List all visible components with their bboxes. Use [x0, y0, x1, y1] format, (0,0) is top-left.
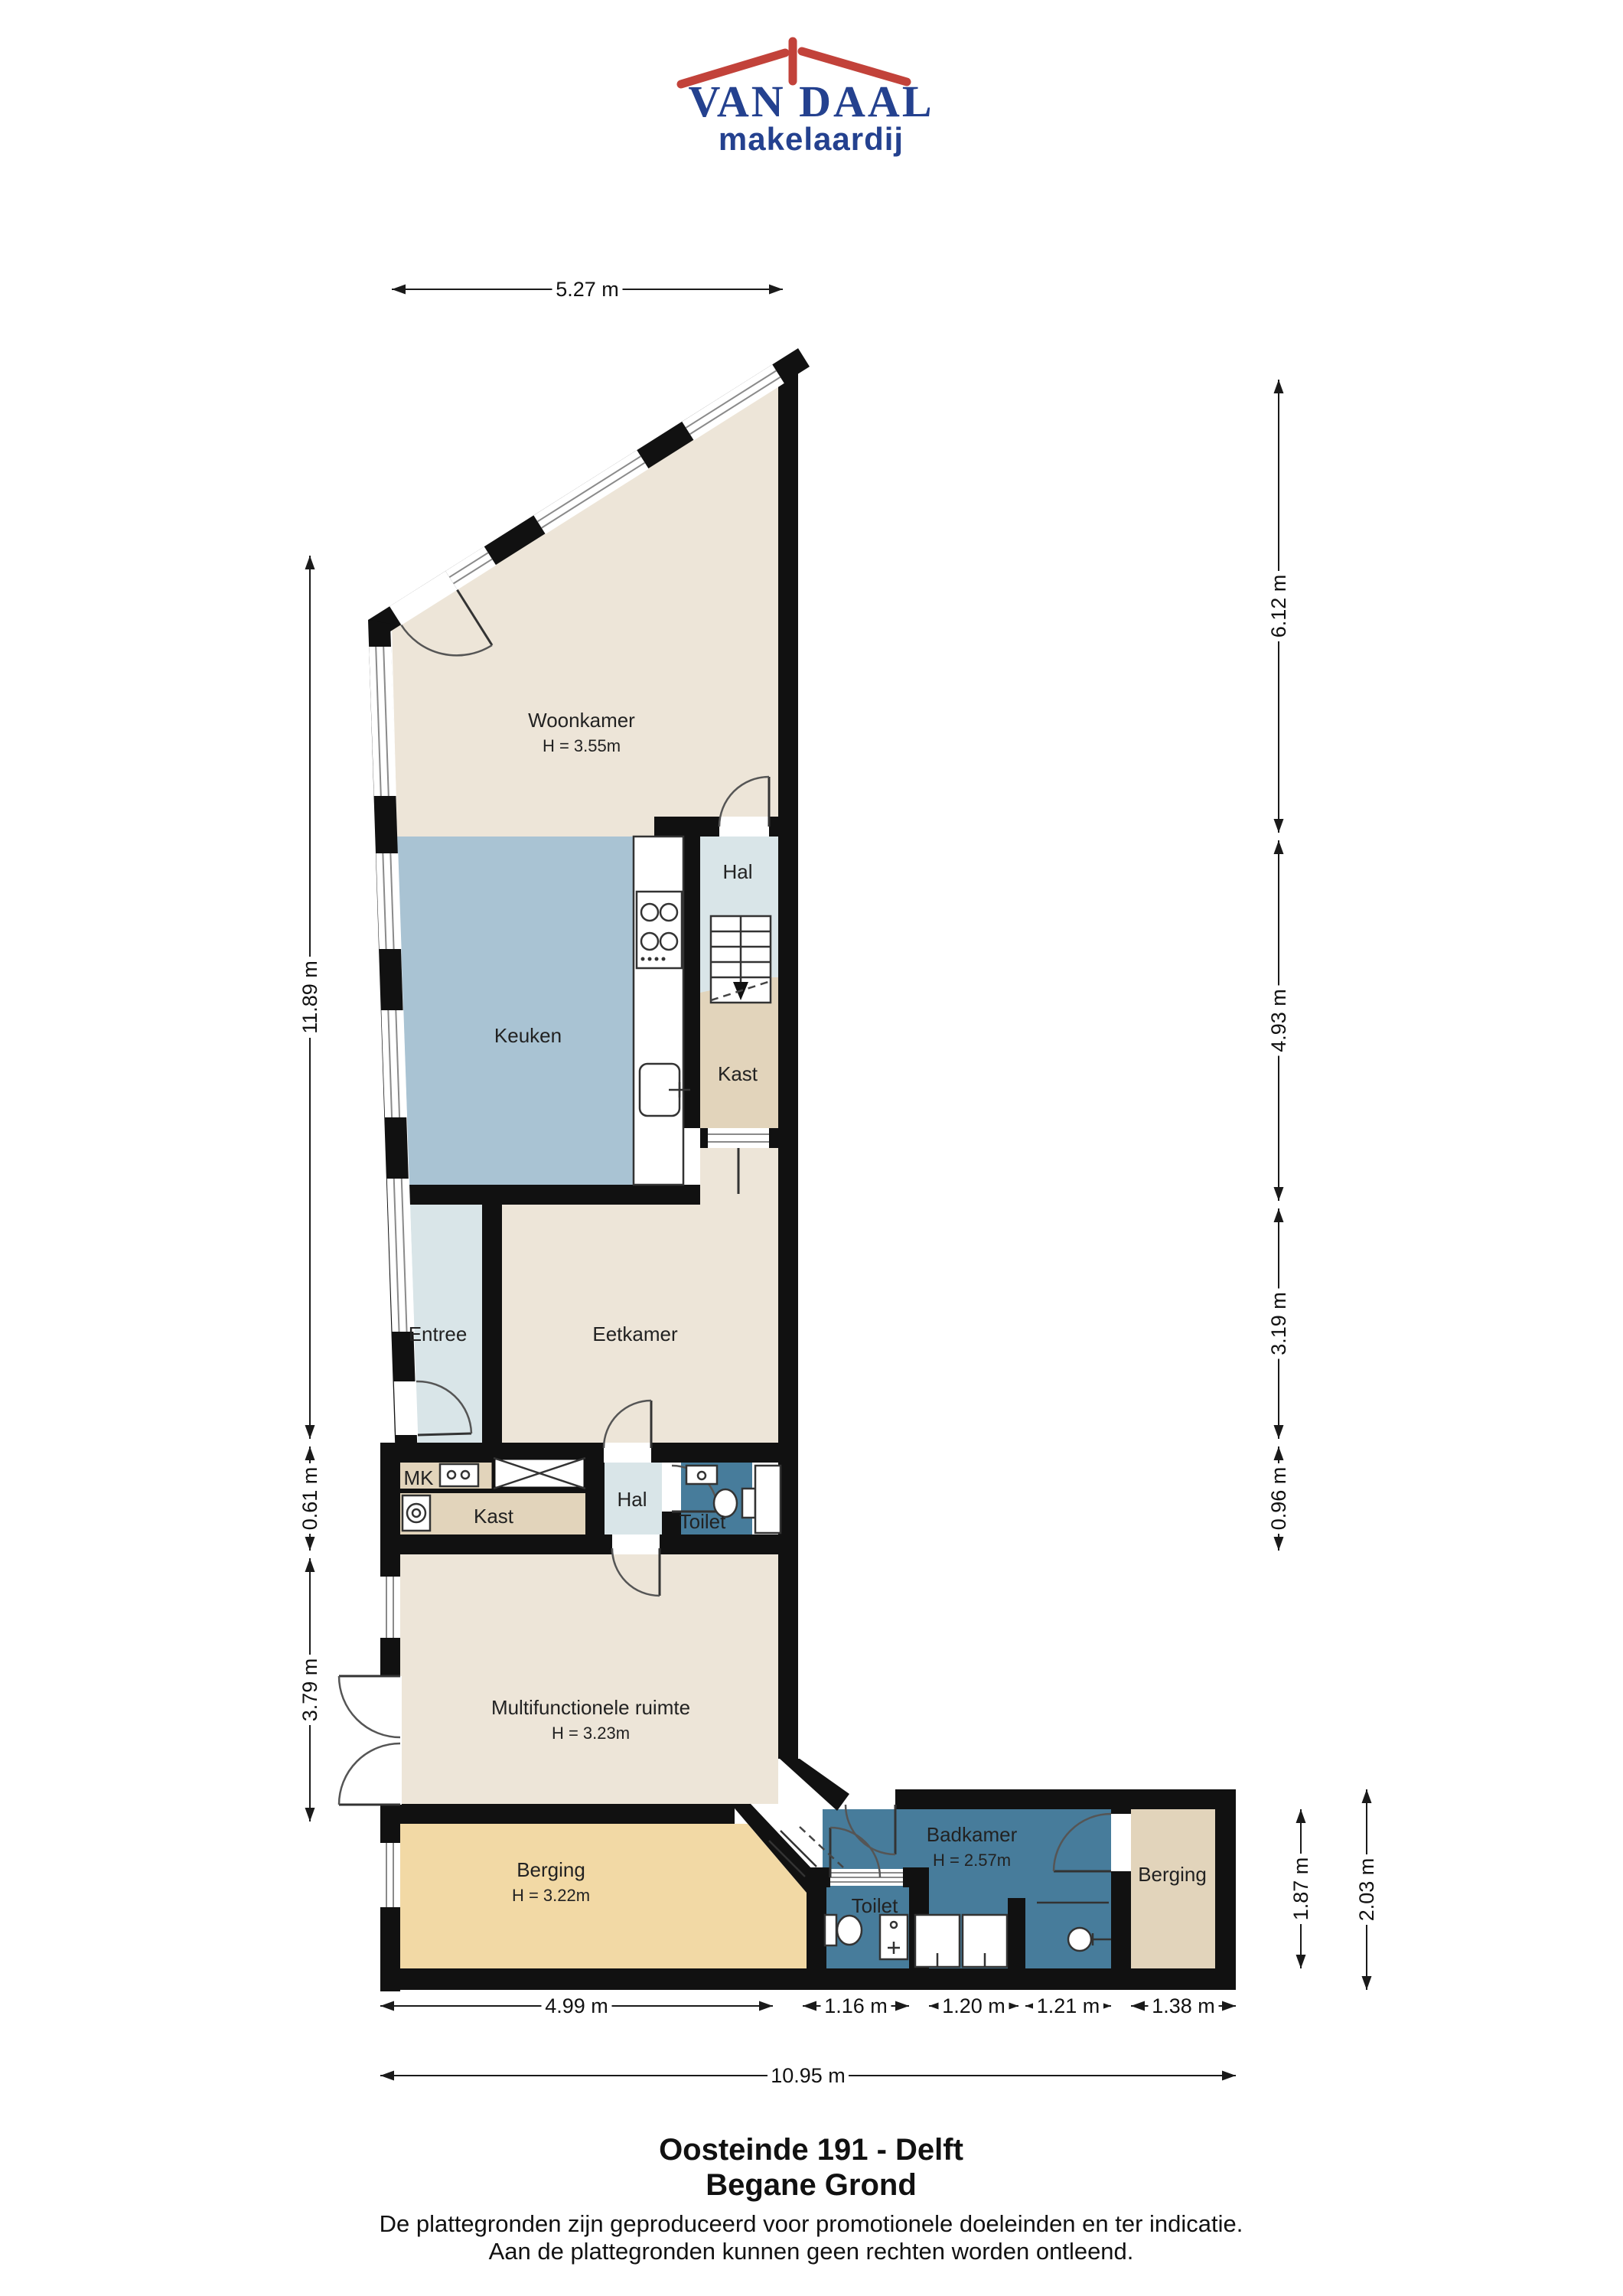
room-label-woonkamer: Woonkamer	[528, 709, 635, 732]
room-sublabel-multifunctionele-ruimte: H = 3.23m	[552, 1724, 630, 1743]
dimension-1.87m-v-part: 1.87 m	[1289, 1854, 1313, 1924]
room-label-berging-links: Berging	[517, 1858, 585, 1881]
floorplan-canvas: VAN DAAL makelaardij	[0, 0, 1623, 2296]
dimension-3.79m-v: 3.79 m	[298, 1558, 322, 1821]
dimension-1.38m-h-part	[1131, 2001, 1145, 2011]
footer-disclaimer-1: De plattegronden zijn geproduceerd voor …	[380, 2210, 1243, 2237]
dimension-6.12m-v: 6.12 m	[1266, 380, 1291, 833]
room-label-toilet-achter: Toilet	[852, 1894, 898, 1917]
dimension-6.12m-v-part: 6.12 m	[1266, 571, 1291, 641]
toilet-icon-part	[837, 1916, 862, 1945]
walls-layer-part	[769, 817, 778, 837]
dimension-0.96m-v-part: 0.96 m	[1266, 1463, 1291, 1534]
room-sublabel-badkamer: H = 2.57m	[933, 1851, 1011, 1870]
rooms-layer	[392, 372, 1215, 1968]
dimension-1.87m-v: 1.87 m	[1289, 1809, 1313, 1968]
walls-layer-part	[1215, 1789, 1236, 1990]
room-berging-rechts	[1131, 1809, 1215, 1968]
shaft-cross-icon	[494, 1458, 585, 1489]
room-label-entree: Entree	[409, 1322, 468, 1345]
walls-layer-part	[394, 1185, 700, 1205]
room-label-hal-boven: Hal	[722, 860, 752, 883]
dimension-0.61m-v-part: 0.61 m	[298, 1463, 322, 1534]
dimension-10.95m-h: 10.95 m	[380, 2063, 1236, 2088]
dimension-0.61m-v: 0.61 m	[298, 1446, 322, 1551]
dimension-label: 3.19 m	[1267, 1292, 1290, 1355]
dimension-3.19m-v-part	[1274, 1425, 1284, 1439]
logo-brand: VAN DAAL	[688, 77, 934, 126]
dimension-label: 3.79 m	[298, 1658, 321, 1722]
dimension-1.16m-h-part	[895, 2001, 909, 2011]
dimension-2.03m-v-part	[1362, 1789, 1372, 1803]
front-door-opening	[394, 1381, 418, 1435]
toilet-icon-part	[825, 1915, 836, 1945]
toilet-icon	[825, 1915, 862, 1945]
room-label-berging-rechts: Berging	[1138, 1863, 1207, 1886]
walls-layer-part	[651, 1443, 798, 1463]
dimension-4.93m-v-part	[1274, 1187, 1284, 1201]
walls-layer-part	[1111, 1871, 1131, 1968]
dimension-2.03m-v-part	[1362, 1976, 1372, 1990]
stove-icon-part	[637, 892, 682, 968]
dimension-1.16m-h-part	[803, 2001, 816, 2011]
dimension-11.89m-v: 11.89 m	[298, 556, 322, 1439]
walls-layer-part	[769, 1128, 778, 1148]
room-label-keuken: Keuken	[494, 1024, 562, 1047]
walls-layer-part	[654, 817, 719, 837]
window	[708, 1128, 769, 1148]
walls-layer-part	[660, 1534, 798, 1554]
room-sublabel-woonkamer: H = 3.55m	[543, 736, 621, 755]
dimension-4.93m-v: 4.93 m	[1266, 840, 1291, 1201]
dimension-0.61m-v-part	[305, 1446, 315, 1460]
walls-layer-part	[683, 817, 700, 1128]
double-door-opening	[379, 1676, 402, 1805]
dimension-11.89m-v-part	[305, 556, 315, 569]
dimension-1.21m-h: 1.21 m	[1025, 1994, 1111, 2018]
dimension-11.89m-v-part	[305, 1425, 315, 1439]
dimension-0.61m-v-part	[305, 1537, 315, 1551]
dimension-3.79m-v-part	[305, 1808, 315, 1821]
walls-layer-part	[780, 1759, 849, 1811]
walls-layer-part	[380, 1804, 735, 1824]
dimension-1.20m-h: 1.20 m	[929, 1994, 1018, 2018]
dimension-3.79m-v-part: 3.79 m	[298, 1655, 322, 1725]
walls-layer-part	[380, 1534, 612, 1554]
room-label-kast-strip: Kast	[474, 1505, 514, 1528]
walls-layer-part	[1111, 1809, 1131, 1814]
walls-layer-part	[1008, 1898, 1025, 1968]
dimension-0.96m-v-part	[1274, 1446, 1284, 1460]
walls-layer-part	[585, 1463, 605, 1534]
dimension-4.93m-v-part: 4.93 m	[1266, 986, 1291, 1056]
dimension-3.19m-v-part	[1274, 1208, 1284, 1222]
room-sublabel-berging-links: H = 3.22m	[512, 1886, 590, 1905]
dimension-1.16m-h: 1.16 m	[803, 1994, 909, 2018]
washer-icon	[402, 1495, 430, 1531]
dimension-label: 6.12 m	[1267, 575, 1290, 638]
window	[381, 1010, 407, 1117]
dimension-1.87m-v-part	[1296, 1955, 1306, 1968]
room-label-multifunctionele-ruimte: Multifunctionele ruimte	[491, 1696, 690, 1719]
stove-icon-part	[662, 957, 666, 961]
boiler-icon	[440, 1464, 478, 1486]
dimension-4.99m-h-part	[759, 2001, 773, 2011]
walls-layer-part	[662, 1512, 681, 1534]
footer-disclaimer-2: Aan de plattegronden kunnen geen rechten…	[489, 2238, 1134, 2265]
dimension-0.96m-v-part	[1274, 1537, 1284, 1551]
dimension-label: 2.03 m	[1355, 1858, 1378, 1922]
room-label-mk: MK	[404, 1466, 435, 1489]
dimension-label: 0.96 m	[1267, 1467, 1290, 1531]
room-label-kast-trap: Kast	[718, 1062, 758, 1085]
dimension-11.89m-v-part: 11.89 m	[298, 957, 322, 1038]
dimension-2.03m-v: 2.03 m	[1354, 1789, 1379, 1990]
dimension-label: 1.21 m	[1037, 1994, 1100, 2017]
room-label-toilet-strip: Toilet	[680, 1510, 726, 1533]
stove-icon-part	[655, 957, 659, 961]
dimension-2.03m-v-part: 2.03 m	[1354, 1854, 1379, 1925]
dimension-10.95m-h-part	[1222, 2071, 1236, 2081]
bathroom-sink-icon-part	[1068, 1928, 1091, 1951]
room-label-badkamer: Badkamer	[927, 1823, 1018, 1846]
logo: VAN DAAL makelaardij	[681, 41, 934, 157]
walls-layer-part	[380, 1968, 1236, 1990]
dimension-1.87m-v-part	[1296, 1809, 1306, 1823]
window	[369, 647, 396, 796]
dimension-label: 4.99 m	[545, 1994, 608, 2017]
walls-layer-part	[895, 1789, 1236, 1809]
room-multifunctionele-ruimte	[400, 1554, 778, 1804]
footer: Oosteinde 191 - Delft Begane Grond De pl…	[380, 2133, 1243, 2265]
walls-layer-part	[482, 1205, 502, 1443]
dimension-1.38m-h-part	[1222, 2001, 1236, 2011]
dimension-10.95m-h-part	[380, 2071, 394, 2081]
dimension-label: 1.87 m	[1289, 1857, 1312, 1921]
window	[376, 853, 401, 949]
dimension-3.19m-v: 3.19 m	[1266, 1208, 1291, 1439]
kitchen-counter	[634, 837, 683, 1185]
hand-basin-icon-part	[686, 1466, 717, 1484]
dimension-label: 11.89 m	[298, 960, 321, 1034]
logo-tagline: makelaardij	[719, 121, 904, 157]
door-front-part	[418, 1433, 471, 1435]
walls-layer-part	[803, 1867, 830, 1887]
stove-icon	[637, 892, 682, 968]
toilet-icon-part	[742, 1489, 755, 1518]
dimension-label: 4.93 m	[1267, 989, 1290, 1052]
boiler-icon-part	[440, 1464, 478, 1486]
dimension-3.19m-v-part: 3.19 m	[1266, 1289, 1291, 1359]
boiler-icon	[880, 1915, 908, 1959]
room-woonkamer	[392, 372, 778, 837]
dimension-5.27m-h: 5.27 m	[392, 277, 783, 302]
dimension-label: 10.95 m	[771, 2064, 846, 2087]
footer-floor: Begane Grond	[706, 2168, 917, 2202]
room-label-eetkamer: Eetkamer	[592, 1322, 678, 1345]
duct-column	[755, 1466, 781, 1533]
dimension-0.96m-v: 0.96 m	[1266, 1446, 1291, 1551]
dimension-label: 5.27 m	[556, 278, 619, 301]
dimension-6.12m-v-part	[1274, 819, 1284, 833]
dimension-4.99m-h: 4.99 m	[380, 1994, 773, 2018]
dimension-4.93m-v-part	[1274, 840, 1284, 854]
dimension-6.12m-v-part	[1274, 380, 1284, 393]
dimension-label: 1.16 m	[824, 1994, 888, 2017]
room-berging-links	[400, 1824, 807, 1968]
dimension-5.27m-h-part	[392, 285, 406, 295]
stove-icon-part	[641, 957, 645, 961]
berging-door-opening	[380, 1843, 400, 1907]
dimension-label: 1.20 m	[942, 1994, 1005, 2017]
dimension-3.79m-v-part	[305, 1558, 315, 1572]
stove-icon-part	[648, 957, 652, 961]
dimension-label: 0.61 m	[298, 1467, 321, 1531]
dimension-1.38m-h: 1.38 m	[1131, 1994, 1236, 2018]
hand-basin-icon	[686, 1466, 717, 1484]
dimension-4.99m-h-part	[380, 2001, 394, 2011]
walls-layer-part	[700, 1128, 708, 1148]
dimension-label: 1.38 m	[1152, 1994, 1215, 2017]
footer-address: Oosteinde 191 - Delft	[659, 2133, 963, 2167]
stairs-icon	[711, 916, 771, 1003]
room-label-hal-beneden: Hal	[617, 1488, 647, 1511]
dimension-5.27m-h-part	[769, 285, 783, 295]
window	[380, 1577, 400, 1638]
